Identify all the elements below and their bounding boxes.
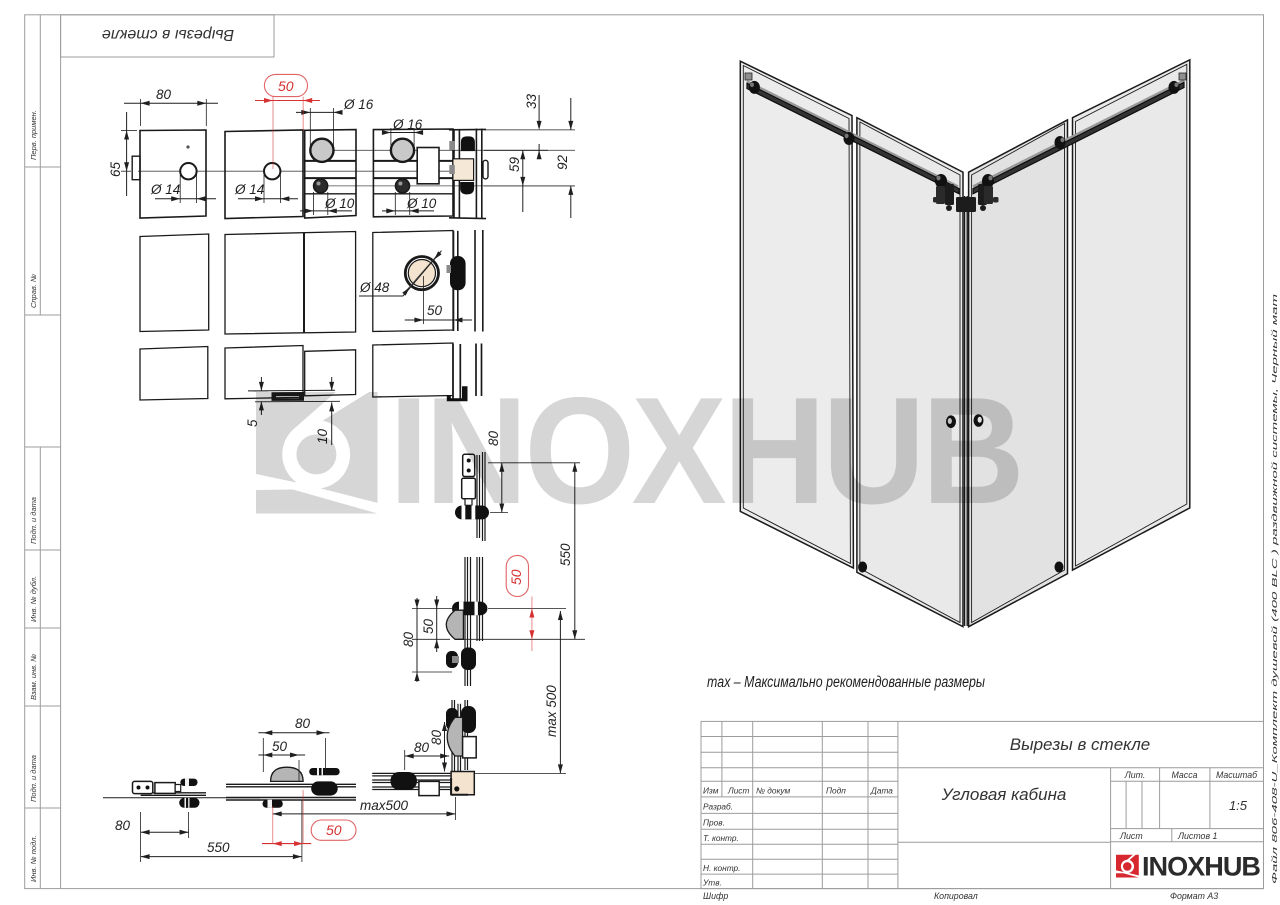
svg-text:Инв. № дубл.: Инв. № дубл. bbox=[29, 576, 38, 622]
svg-text:59: 59 bbox=[507, 156, 522, 172]
svg-text:Подп: Подп bbox=[826, 786, 846, 796]
svg-text:550: 550 bbox=[558, 543, 573, 566]
svg-text:Угловая кабина: Угловая кабина bbox=[941, 785, 1067, 804]
svg-text:max – Максимально рекомендован: max – Максимально рекомендованные размер… bbox=[707, 674, 985, 691]
svg-text:Лит.: Лит. bbox=[1124, 770, 1146, 780]
svg-text:Ø 10: Ø 10 bbox=[324, 196, 355, 211]
svg-text:Справ. №: Справ. № bbox=[29, 274, 38, 308]
svg-text:50: 50 bbox=[427, 303, 443, 318]
svg-text:Ø 16: Ø 16 bbox=[343, 97, 374, 112]
svg-text:Перв. примен.: Перв. примен. bbox=[29, 110, 38, 160]
svg-text:Вырезы в стекле: Вырезы в стекле bbox=[102, 26, 234, 43]
svg-text:max500: max500 bbox=[360, 798, 409, 813]
svg-text:№ докум: № докум bbox=[756, 786, 791, 796]
svg-text:Шифр: Шифр bbox=[703, 891, 728, 901]
svg-text:1:5: 1:5 bbox=[1229, 798, 1248, 813]
svg-text:50: 50 bbox=[508, 569, 524, 585]
svg-text:50: 50 bbox=[326, 822, 342, 838]
svg-text:Взам. инв. №: Взам. инв. № bbox=[29, 654, 38, 700]
svg-text:Инв. № подл.: Инв. № подл. bbox=[29, 835, 38, 882]
svg-text:50: 50 bbox=[272, 739, 288, 754]
svg-text:Лист: Лист bbox=[727, 786, 749, 796]
svg-text:50: 50 bbox=[421, 618, 436, 634]
svg-text:92: 92 bbox=[555, 154, 570, 170]
svg-text:33: 33 bbox=[524, 93, 539, 109]
svg-text:80: 80 bbox=[414, 740, 430, 755]
svg-text:80: 80 bbox=[429, 729, 444, 745]
svg-text:Копировал: Копировал bbox=[934, 891, 978, 901]
svg-text:80: 80 bbox=[295, 716, 311, 731]
svg-text:Вырезы в стекле: Вырезы в стекле bbox=[1010, 735, 1150, 754]
svg-text:Разраб.: Разраб. bbox=[703, 802, 733, 812]
svg-text:INOXHUB: INOXHUB bbox=[389, 366, 1021, 536]
svg-text:Ø 48: Ø 48 bbox=[359, 280, 390, 295]
svg-text:Файл 806-408-U_Комплект душево: Файл 806-408-U_Комплект душевой (400 BLC… bbox=[1270, 294, 1279, 884]
svg-text:Листов 1: Листов 1 bbox=[1177, 831, 1217, 841]
svg-text:80: 80 bbox=[156, 87, 172, 102]
svg-text:Пров.: Пров. bbox=[703, 818, 725, 828]
svg-text:Дата: Дата bbox=[870, 786, 893, 796]
svg-text:Н. контр.: Н. контр. bbox=[703, 863, 740, 873]
svg-text:Подп. и дата: Подп. и дата bbox=[29, 497, 38, 544]
svg-text:Масса: Масса bbox=[1171, 770, 1197, 780]
svg-text:80: 80 bbox=[401, 631, 416, 647]
svg-text:Масштаб: Масштаб bbox=[1216, 770, 1258, 780]
svg-text:Подп. и дата: Подп. и дата bbox=[29, 755, 38, 802]
svg-text:65: 65 bbox=[108, 161, 123, 177]
svg-text:Изм: Изм bbox=[703, 786, 719, 796]
svg-text:INOXHUB: INOXHUB bbox=[1142, 852, 1260, 882]
svg-text:Ø 16: Ø 16 bbox=[392, 117, 423, 132]
svg-text:Ø 10: Ø 10 bbox=[406, 196, 437, 211]
svg-text:80: 80 bbox=[115, 818, 131, 833]
svg-text:Т. контр.: Т. контр. bbox=[703, 833, 739, 843]
svg-text:Ø 14: Ø 14 bbox=[234, 182, 264, 197]
svg-text:Формат А3: Формат А3 bbox=[1170, 891, 1218, 901]
svg-text:max 500: max 500 bbox=[544, 685, 559, 737]
svg-text:Ø 14: Ø 14 bbox=[150, 182, 180, 197]
svg-text:50: 50 bbox=[278, 78, 294, 94]
svg-text:550: 550 bbox=[207, 840, 230, 855]
svg-text:Лист: Лист bbox=[1119, 831, 1143, 841]
svg-text:Утв.: Утв. bbox=[702, 878, 722, 888]
